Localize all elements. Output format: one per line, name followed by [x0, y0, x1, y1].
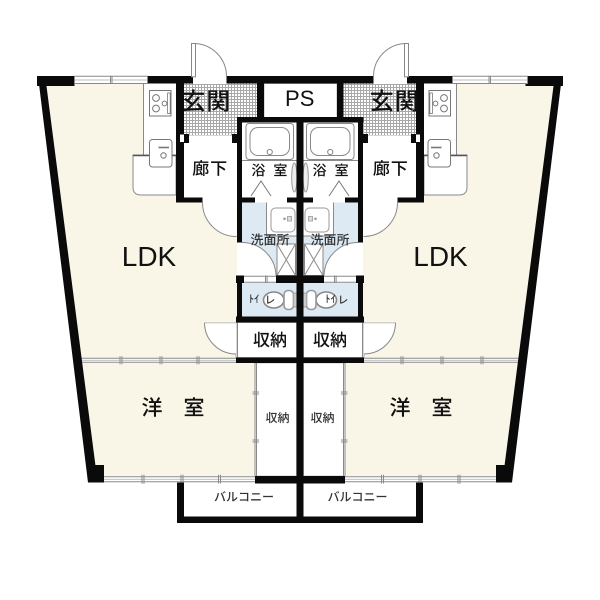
svg-text:LDK: LDK — [122, 241, 177, 272]
svg-text:PS: PS — [285, 86, 314, 111]
svg-text:LDK: LDK — [413, 241, 468, 272]
